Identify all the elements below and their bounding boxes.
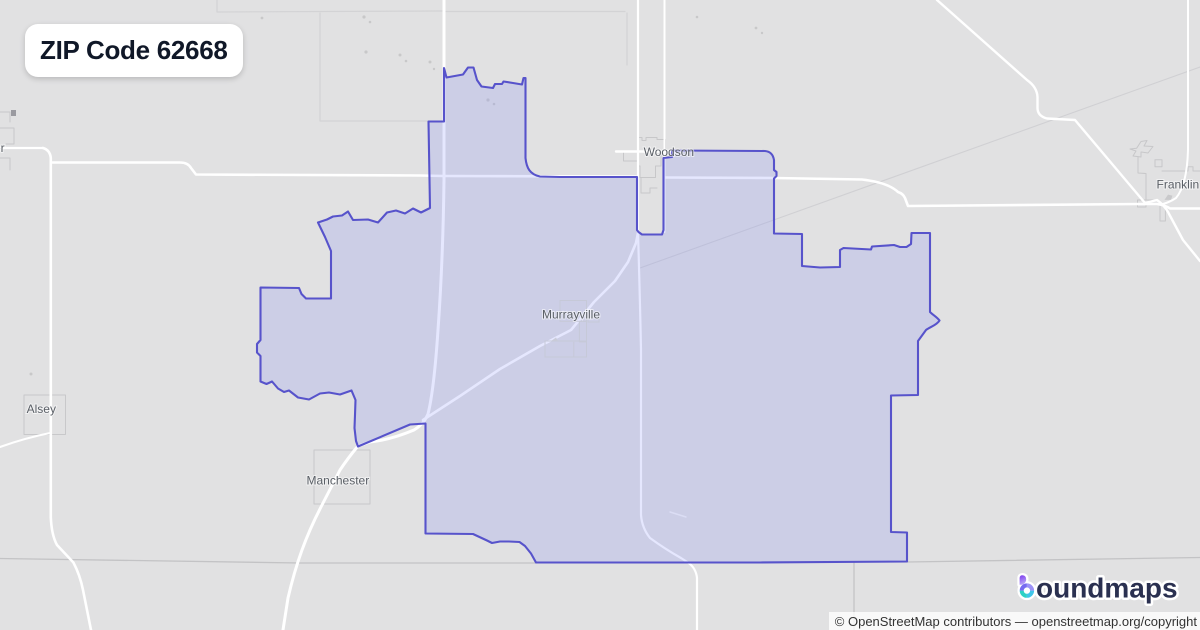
svg-text:Woodson: Woodson: [644, 145, 694, 159]
svg-text:er: er: [0, 141, 5, 155]
svg-text:Murrayville: Murrayville: [542, 308, 600, 322]
svg-text:Alsey: Alsey: [27, 402, 56, 416]
svg-text:Franklin: Franklin: [1157, 178, 1200, 192]
svg-text:oundmaps: oundmaps: [1036, 573, 1178, 604]
svg-text:Manchester: Manchester: [307, 474, 370, 488]
